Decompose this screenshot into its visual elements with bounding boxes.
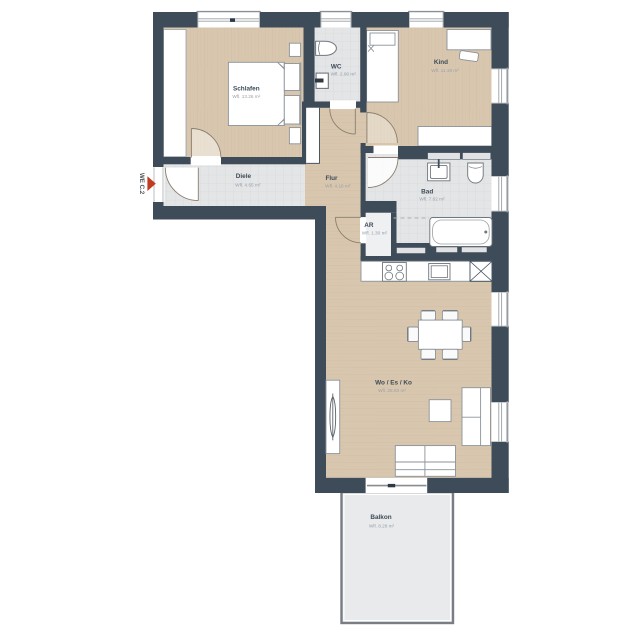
svg-text:Diele: Diele <box>236 173 252 180</box>
svg-text:WE C.2: WE C.2 <box>138 173 145 195</box>
svg-text:Wfl. 4.16 m²: Wfl. 4.16 m² <box>325 184 351 189</box>
svg-text:Wfl. 4.65 m²: Wfl. 4.65 m² <box>235 183 261 188</box>
svg-text:AR: AR <box>364 222 374 229</box>
svg-text:Flur: Flur <box>325 175 338 182</box>
svg-text:Wfl. 8.28 m²: Wfl. 8.28 m² <box>369 523 395 528</box>
svg-text:Wfl. 2.90 m²: Wfl. 2.90 m² <box>331 72 357 77</box>
svg-text:Wfl. 11.19 m²: Wfl. 11.19 m² <box>431 68 459 73</box>
svg-text:Schlafen: Schlafen <box>233 85 260 92</box>
svg-text:Balkon: Balkon <box>370 514 391 521</box>
svg-text:Wfl. 1.30 m²: Wfl. 1.30 m² <box>362 231 388 236</box>
svg-text:WC: WC <box>331 63 342 70</box>
svg-text:Wfl. 28.83 m²: Wfl. 28.83 m² <box>378 388 406 393</box>
svg-text:Wfl. 13.26 m²: Wfl. 13.26 m² <box>232 94 260 99</box>
svg-text:Wfl. 7.02 m²: Wfl. 7.02 m² <box>419 197 445 202</box>
svg-text:Bad: Bad <box>421 188 433 195</box>
svg-text:Kind: Kind <box>434 59 448 66</box>
svg-text:Wo / Es / Ko: Wo / Es / Ko <box>375 379 412 386</box>
